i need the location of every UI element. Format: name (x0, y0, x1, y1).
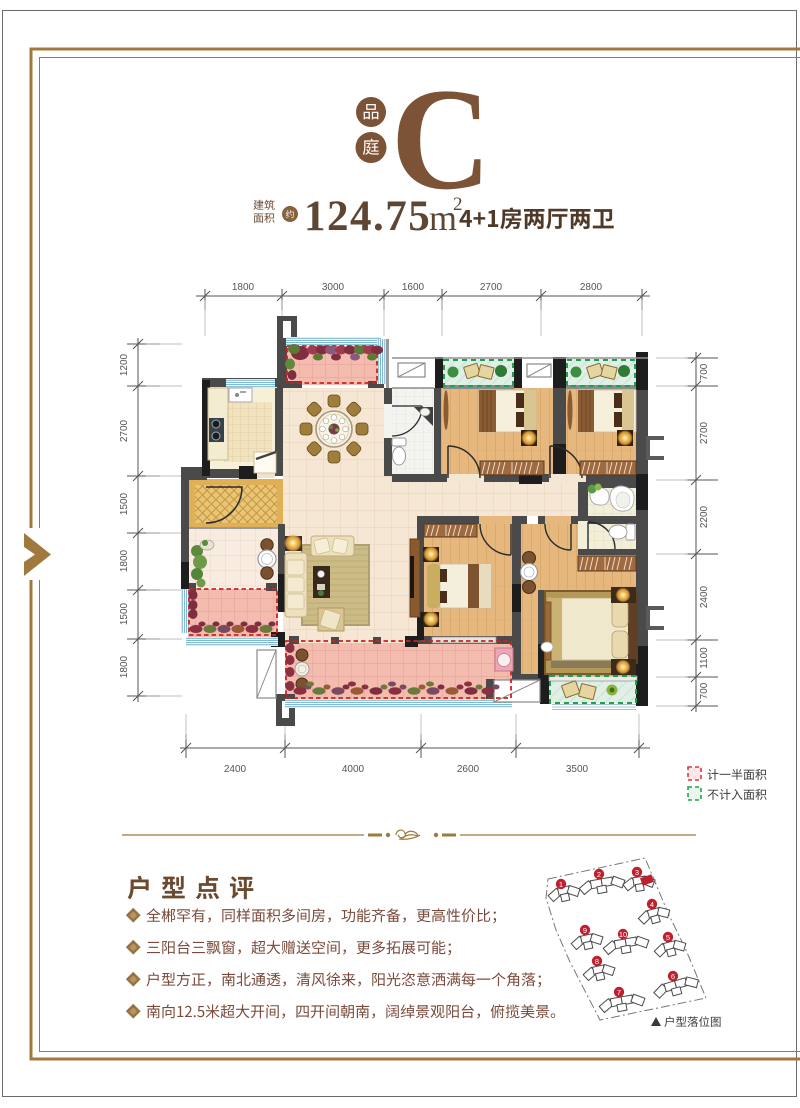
svg-text:7: 7 (617, 988, 621, 997)
svg-text:1800: 1800 (232, 282, 255, 293)
svg-text:1800: 1800 (119, 655, 130, 678)
svg-text:2400: 2400 (699, 585, 710, 608)
svg-text:2600: 2600 (457, 764, 480, 775)
svg-text:700: 700 (699, 682, 710, 699)
svg-text:2800: 2800 (580, 282, 603, 293)
svg-text:6: 6 (671, 972, 675, 981)
svg-text:4: 4 (650, 900, 654, 909)
svg-text:3500: 3500 (566, 764, 589, 775)
svg-text:3: 3 (635, 868, 639, 877)
svg-text:2700: 2700 (699, 421, 710, 444)
svg-text:1600: 1600 (402, 282, 425, 293)
svg-text:1800: 1800 (119, 549, 130, 572)
svg-text:4000: 4000 (342, 764, 365, 775)
svg-text:1100: 1100 (699, 647, 710, 669)
svg-text:1500: 1500 (119, 492, 130, 515)
svg-text:124.75: 124.75 (304, 193, 431, 240)
svg-text:2200: 2200 (699, 505, 710, 528)
svg-text:8: 8 (595, 957, 599, 966)
svg-text:5: 5 (666, 933, 670, 942)
svg-text:1: 1 (559, 880, 563, 889)
svg-text:1200: 1200 (119, 353, 130, 376)
svg-text:700: 700 (699, 363, 710, 380)
svg-text:2400: 2400 (224, 764, 247, 775)
svg-text:2700: 2700 (119, 419, 130, 442)
svg-text:2: 2 (453, 194, 463, 215)
svg-text:9: 9 (583, 926, 587, 935)
svg-text:2: 2 (597, 870, 601, 879)
svg-text:3000: 3000 (322, 282, 345, 293)
svg-text:10: 10 (619, 930, 627, 939)
svg-text:2700: 2700 (480, 282, 503, 293)
svg-text:1500: 1500 (119, 602, 130, 625)
